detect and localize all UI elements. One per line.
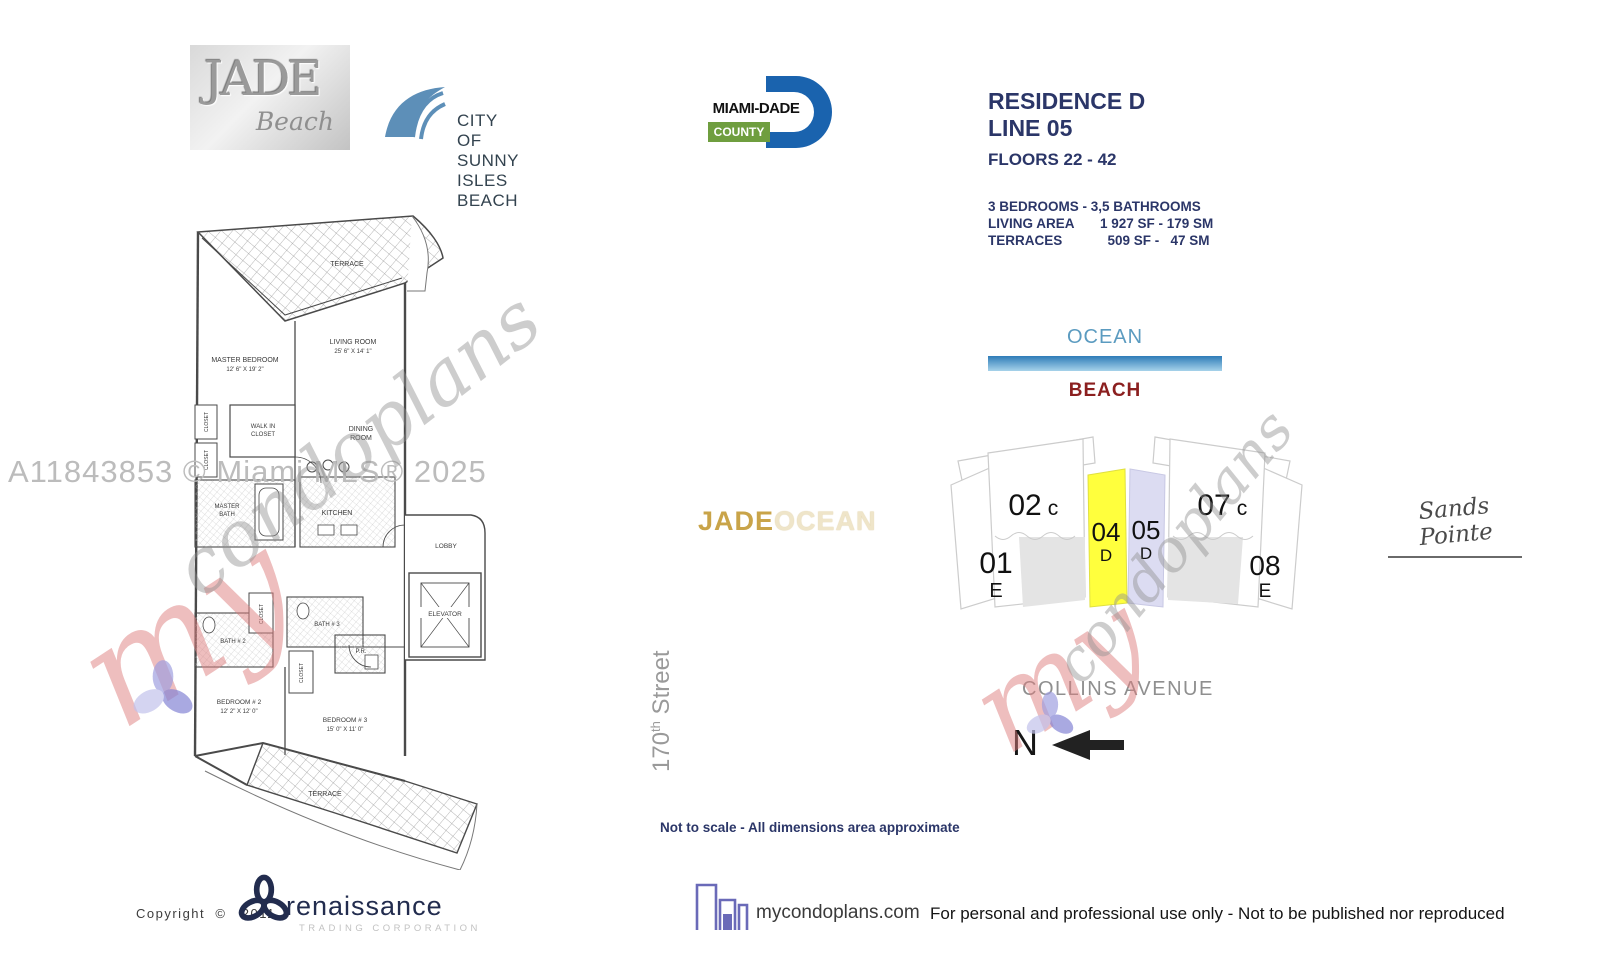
jade-logo-subtitle: Beach xyxy=(256,107,334,136)
label-closet-mid: CLOSET xyxy=(259,604,265,624)
jade-ocean-part2: OCEAN xyxy=(774,506,877,536)
bath3-toilet xyxy=(297,603,309,619)
ocean-label: OCEAN xyxy=(988,326,1222,349)
residence-terraces: TERRACES 509 SF - 47 SM xyxy=(988,232,1213,249)
renaissance-trefoil-icon xyxy=(238,874,290,928)
sunny-isles-logo: CITY OF SUNNY ISLES BEACH xyxy=(383,85,447,145)
scale-note: Not to scale - All dimensions area appro… xyxy=(660,820,960,835)
jade-beach-logo: JADE Beach xyxy=(190,45,350,150)
renaissance-name: renaissance xyxy=(286,891,443,922)
unit-07-number: 07 xyxy=(1197,489,1230,522)
label-pr: P.R. xyxy=(356,649,367,655)
county-sub: COUNTY xyxy=(708,122,770,142)
label-dining-1: DINING xyxy=(349,426,374,433)
city-label: CITY OF SUNNY ISLES BEACH xyxy=(457,111,519,211)
label-bedroom3: BEDROOM # 3 xyxy=(323,717,368,724)
kitchen-sink-1 xyxy=(318,525,334,535)
unit-01-letter: E xyxy=(989,580,1002,602)
kitchen-sink-2 xyxy=(341,525,357,535)
jade-ocean-mark: JADEOCEAN xyxy=(698,506,877,537)
bath2-toilet xyxy=(203,617,215,633)
street-170-word: Street xyxy=(648,650,675,721)
label-bedroom2: BEDROOM # 2 xyxy=(217,699,262,706)
kitchen-stool-2 xyxy=(323,460,333,470)
beach-label: BEACH xyxy=(988,380,1222,402)
mycondoplans-icon xyxy=(692,878,750,934)
label-walkin-1: WALK IN xyxy=(251,424,275,430)
unit-05-letter: D xyxy=(1140,544,1152,563)
unit-02-letter: c xyxy=(1048,497,1059,520)
building-key-plan: 01 E 02 c 04 D 05 D 07 c 08 E xyxy=(933,423,1315,628)
miami-dade-logo: MIAMI-DADE COUNTY xyxy=(706,76,834,148)
north-label: N xyxy=(1012,722,1038,764)
renaissance-sub: TRADING CORPORATION xyxy=(299,923,481,934)
unit-04-number: 04 xyxy=(1092,517,1121,547)
label-lobby: LOBBY xyxy=(435,543,457,550)
label-bath2: BATH # 2 xyxy=(220,639,246,645)
terraces-label: TERRACES xyxy=(988,232,1100,249)
street-170-num: 170 xyxy=(648,732,675,772)
sands-pointe-text: Sands Pointe xyxy=(1386,490,1524,553)
site-name: mycondoplans.com xyxy=(756,902,920,924)
walkin-closet-room xyxy=(230,405,295,457)
floor-plan-drawing: TERRACE MASTER BEDROOM 12' 6" X 19' 2" L… xyxy=(175,215,495,870)
terraces-value: 509 SF - 47 SM xyxy=(1100,232,1210,249)
kitchen-stool-3 xyxy=(339,462,349,472)
wave-icon xyxy=(383,85,447,143)
label-bedroom3-dims: 15' 0" X 11' 0" xyxy=(327,727,364,733)
label-walkin-2: CLOSET xyxy=(251,432,275,438)
label-elevator: ELEVATOR xyxy=(428,611,462,618)
ocean-bar xyxy=(988,356,1222,371)
label-kitchen: KITCHEN xyxy=(322,510,353,517)
street-170-sup: th xyxy=(648,721,663,732)
label-bath3: BATH # 3 xyxy=(314,622,340,628)
label-closet-b: CLOSET xyxy=(204,450,210,470)
unit-05-number: 05 xyxy=(1132,515,1161,545)
residence-floors: FLOORS 22 - 42 xyxy=(988,150,1213,170)
label-master-bath-1: MASTER xyxy=(214,504,240,510)
residence-living-area: LIVING AREA 1 927 SF - 179 SM xyxy=(988,215,1213,232)
living-area-value: 1 927 SF - 179 SM xyxy=(1100,215,1213,232)
unit-08-number: 08 xyxy=(1249,550,1280,581)
terrace-bottom-area xyxy=(247,743,477,853)
label-master-bedroom-dims: 12' 6" X 19' 2" xyxy=(226,367,263,373)
label-dining-2: ROOM xyxy=(350,435,372,442)
keyplan-shaded-left xyxy=(1019,537,1085,607)
county-name: MIAMI-DADE xyxy=(706,98,806,120)
unit-04-letter: D xyxy=(1100,546,1112,565)
residence-info: RESIDENCE D LINE 05 FLOORS 22 - 42 3 BED… xyxy=(988,88,1213,249)
residence-line: LINE 05 xyxy=(988,115,1213,142)
unit-08-letter: E xyxy=(1259,581,1272,602)
north-arrow-icon xyxy=(1052,730,1124,760)
floor-plan-sheet: JADE Beach CITY OF SUNNY ISLES BEACH MIA… xyxy=(0,0,1600,978)
wall-bottom-left xyxy=(195,756,247,785)
collins-avenue-label: COLLINS AVENUE xyxy=(1022,678,1214,701)
sands-pointe-mark: Sands Pointe xyxy=(1388,496,1522,558)
street-170-label: 170th Street xyxy=(648,650,676,772)
label-master-bath-2: BATH xyxy=(219,512,235,518)
label-terrace-bottom: TERRACE xyxy=(308,791,342,798)
unit-01-number: 01 xyxy=(979,547,1012,580)
keyplan-shaded-right xyxy=(1168,537,1243,604)
residence-bed-bath: 3 BEDROOMS - 3,5 BATHROOMS xyxy=(988,198,1213,215)
label-living-room: LIVING ROOM xyxy=(330,339,377,346)
living-area-label: LIVING AREA xyxy=(988,215,1100,232)
residence-title: RESIDENCE D xyxy=(988,88,1213,115)
unit-07-letter: c xyxy=(1237,497,1248,520)
jade-ocean-part1: JADE xyxy=(698,506,774,536)
label-bedroom2-dims: 12' 2" X 12' 0" xyxy=(220,709,257,715)
label-closet-low: CLOSET xyxy=(299,663,305,683)
label-closet-a: CLOSET xyxy=(204,412,210,432)
label-living-room-dims: 25' 6" X 14' 1" xyxy=(334,349,371,355)
disclaimer-text: For personal and professional use only -… xyxy=(930,904,1505,924)
jade-logo-title: JADE xyxy=(204,51,319,107)
label-master-bedroom: MASTER BEDROOM xyxy=(211,357,278,364)
label-terrace-top: TERRACE xyxy=(330,261,364,268)
unit-02-number: 02 xyxy=(1008,489,1041,522)
